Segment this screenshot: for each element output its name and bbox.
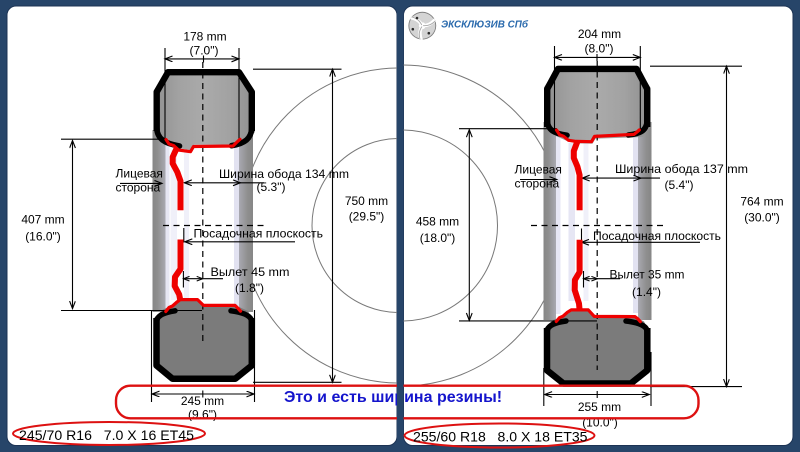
svg-text:Посадочная плоскость: Посадочная плоскость xyxy=(194,227,324,241)
svg-text:Вылет 35 mm: Вылет 35 mm xyxy=(610,268,685,282)
svg-text:(1.4"): (1.4") xyxy=(632,285,661,299)
svg-text:750 mm: 750 mm xyxy=(345,194,388,208)
svg-text:255 mm: 255 mm xyxy=(578,400,621,414)
svg-text:сторона: сторона xyxy=(515,177,560,191)
svg-text:(30.0"): (30.0") xyxy=(744,211,780,225)
svg-text:(7.0"): (7.0") xyxy=(190,44,219,58)
svg-text:245/70 R16 7.0 X 16 ET45: 245/70 R16 7.0 X 16 ET45 xyxy=(19,428,194,443)
svg-text:(16.0"): (16.0") xyxy=(25,230,61,244)
svg-text:(8.0"): (8.0") xyxy=(585,42,614,56)
svg-text:(18.0"): (18.0") xyxy=(420,231,456,245)
svg-text:(29.5"): (29.5") xyxy=(349,210,385,224)
svg-text:сторона: сторона xyxy=(116,181,161,195)
svg-text:ЭКСКЛЮЗИВ СПб: ЭКСКЛЮЗИВ СПб xyxy=(441,19,529,30)
svg-text:764 mm: 764 mm xyxy=(740,195,783,209)
svg-text:407 mm: 407 mm xyxy=(21,213,64,227)
svg-text:Лицевая: Лицевая xyxy=(116,167,163,181)
svg-text:458 mm: 458 mm xyxy=(416,215,459,229)
svg-text:(5.3"): (5.3") xyxy=(257,180,286,194)
svg-text:178 mm: 178 mm xyxy=(183,30,226,44)
svg-text:Лицевая: Лицевая xyxy=(515,163,562,177)
svg-text:Вылет 45 mm: Вылет 45 mm xyxy=(211,265,290,279)
svg-text:(5.4"): (5.4") xyxy=(665,178,694,192)
svg-text:245 mm: 245 mm xyxy=(181,394,224,408)
svg-text:Ширина обода 137 mm: Ширина обода 137 mm xyxy=(615,162,748,176)
svg-text:Это и есть ширина резины!: Это и есть ширина резины! xyxy=(284,389,502,406)
svg-text:204 mm: 204 mm xyxy=(578,27,621,41)
svg-text:255/60 R18 8.0 X 18 ET35: 255/60 R18 8.0 X 18 ET35 xyxy=(413,430,588,445)
svg-text:Посадочная плоскость: Посадочная плоскость xyxy=(593,229,721,243)
svg-text:(1.8"): (1.8") xyxy=(235,281,264,295)
